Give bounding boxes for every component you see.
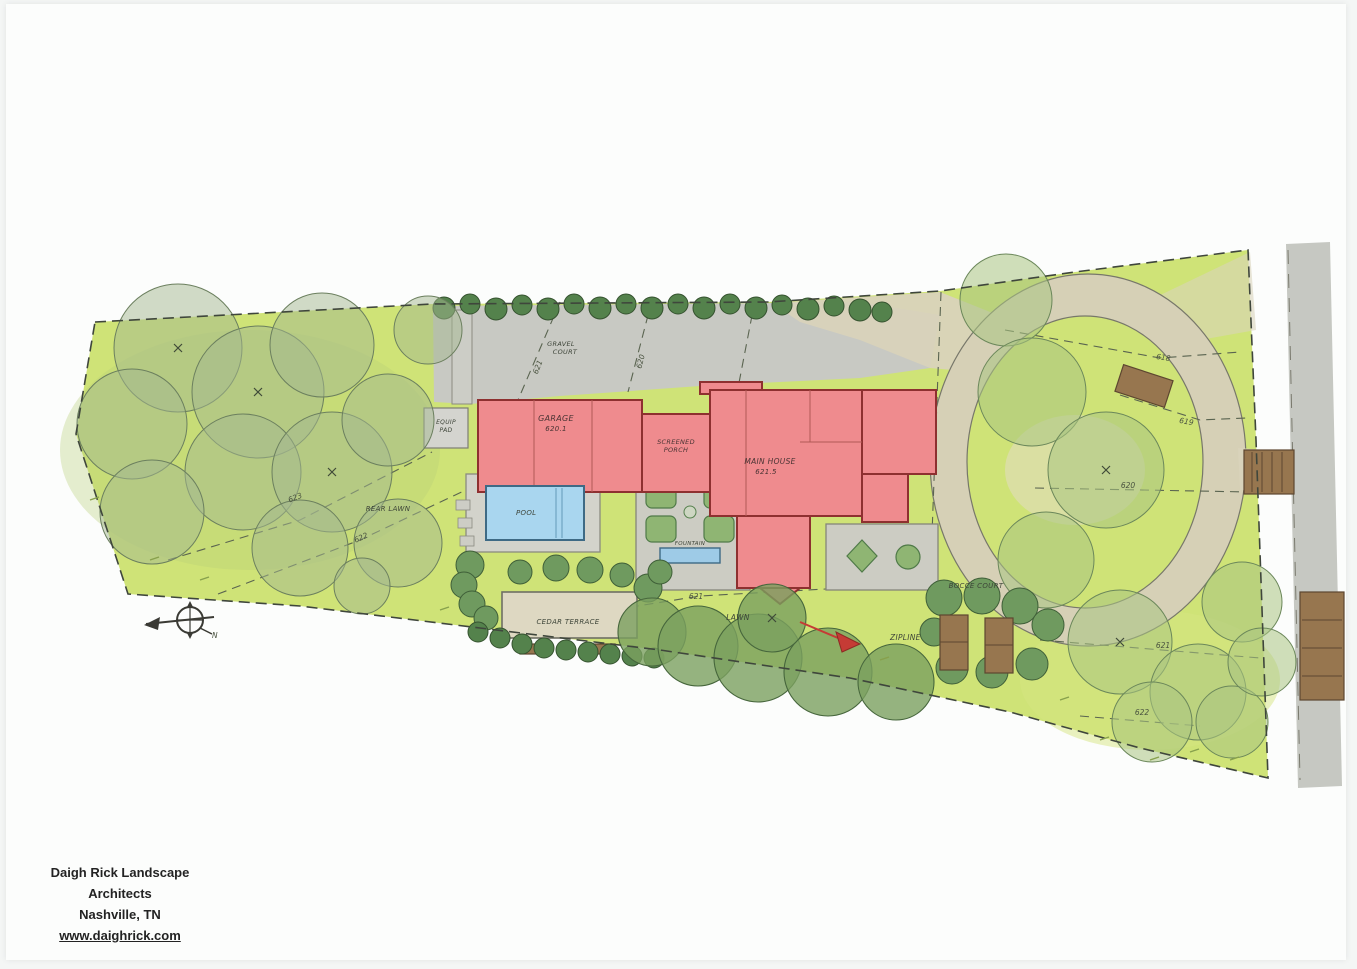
street-road [1286, 242, 1342, 788]
contour-620-right: 620 [1121, 481, 1136, 490]
fountain [660, 548, 720, 563]
main-house-label: MAIN HOUSE [744, 457, 795, 466]
equip-pad-label: EQUIP [436, 419, 456, 426]
site-plan-drawing: N GRAVEL COURT EQUIP PAD GARAGE 620.1 SC… [0, 0, 1357, 969]
road-bridge [1300, 592, 1344, 700]
entry-bridge [1244, 450, 1294, 494]
gravel-court-label: GRAVEL [547, 340, 575, 348]
pool-label: POOL [516, 509, 536, 517]
zipline-label: ZIPLINE [889, 633, 921, 642]
rear-lawn-label: REAR LAWN [366, 505, 411, 513]
east-garden-court [826, 524, 938, 590]
firm-website: www.daighrick.com [28, 925, 212, 946]
scanned-plan-page: N GRAVEL COURT EQUIP PAD GARAGE 620.1 SC… [0, 0, 1357, 969]
firm-name: Daigh Rick Landscape Architects [28, 862, 212, 904]
fountain-label: FOUNTAIN [675, 541, 705, 547]
title-block: Daigh Rick Landscape Architects Nashvill… [28, 862, 212, 946]
garage-elevation: 620.1 [545, 425, 567, 433]
lawn-label: LAWN [726, 613, 749, 622]
cedar-terrace-label: CEDAR TERRACE [536, 618, 599, 626]
contour-622-right: 622 [1135, 708, 1150, 717]
compass-rose: N [144, 601, 218, 640]
screened-porch-label: SCREENED [657, 438, 695, 446]
bocce-court-label: BOCCE COURT [949, 582, 1004, 590]
main-house-elevation: 621.5 [755, 468, 777, 476]
gravel-court-label-2: COURT [553, 348, 578, 356]
contour-621-right: 621 [1156, 641, 1170, 650]
screened-porch-label-2: PORCH [664, 446, 688, 454]
firm-location: Nashville, TN [28, 904, 212, 925]
north-label: N [212, 631, 218, 640]
equip-pad-label-2: PAD [440, 427, 453, 434]
garage-label: GARAGE [538, 414, 574, 423]
contour-621-lawn: 621 [689, 592, 703, 601]
